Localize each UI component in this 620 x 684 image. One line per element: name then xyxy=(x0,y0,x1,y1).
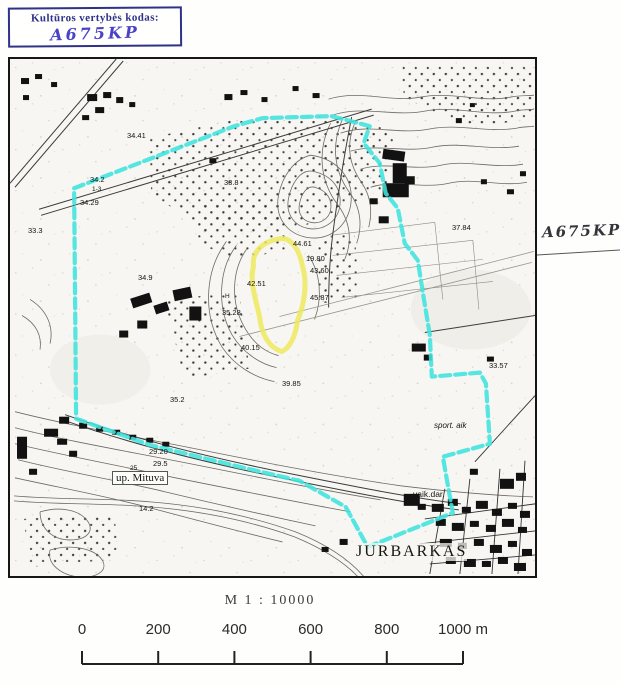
map-code-annotation: A675KP xyxy=(542,221,620,242)
topographic-map xyxy=(8,57,537,578)
scale-bar xyxy=(75,642,475,668)
scalebar-tick-label: 800 xyxy=(374,621,399,638)
stamp-code-handwritten: A675KP xyxy=(10,21,181,46)
scale-text: M 1 : 10000 xyxy=(0,593,540,609)
stamp-box: Kultūros vertybės kodas: A675KP xyxy=(8,6,182,47)
scalebar-labels: 02004006008001000 m xyxy=(0,621,620,641)
scalebar-tick-label: 200 xyxy=(146,621,171,638)
scalebar-tick-label: 0 xyxy=(78,621,86,638)
scalebar-tick-label: 600 xyxy=(298,621,323,638)
scalebar-tick-label: 400 xyxy=(222,621,247,638)
scalebar-tick-label: 1000 m xyxy=(438,621,488,638)
scanned-map-document: Kultūros vertybės kodas: A675KP xyxy=(0,0,620,684)
map-canvas xyxy=(10,59,535,576)
annotation-leader-line xyxy=(537,243,620,259)
